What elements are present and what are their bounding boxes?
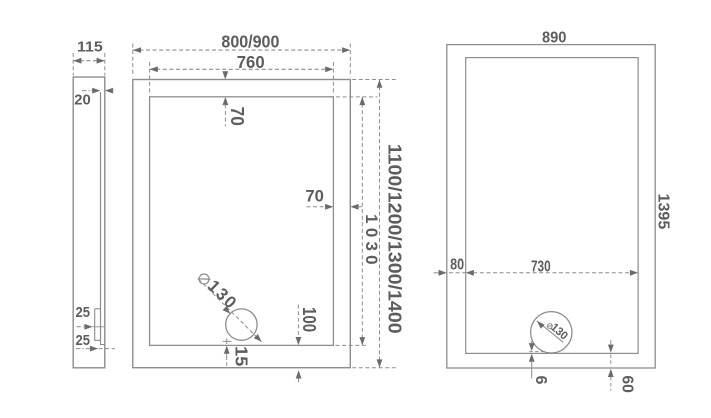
svg-text:25: 25 bbox=[76, 332, 91, 349]
svg-text:60: 60 bbox=[619, 375, 636, 393]
svg-text:1395: 1395 bbox=[655, 194, 672, 230]
svg-text:25: 25 bbox=[76, 304, 91, 321]
svg-text:890: 890 bbox=[542, 30, 567, 47]
svg-text:6: 6 bbox=[532, 376, 549, 385]
svg-text:115: 115 bbox=[77, 39, 103, 56]
svg-text:1100/1200/1300/1400: 1100/1200/1300/1400 bbox=[384, 144, 405, 334]
svg-text:70: 70 bbox=[305, 188, 324, 206]
svg-text:20: 20 bbox=[74, 91, 91, 108]
svg-text:800/900: 800/900 bbox=[221, 32, 279, 52]
svg-text:70: 70 bbox=[227, 107, 247, 126]
svg-text:80: 80 bbox=[450, 256, 464, 273]
svg-text:100: 100 bbox=[299, 307, 319, 332]
svg-text:15: 15 bbox=[231, 346, 251, 367]
